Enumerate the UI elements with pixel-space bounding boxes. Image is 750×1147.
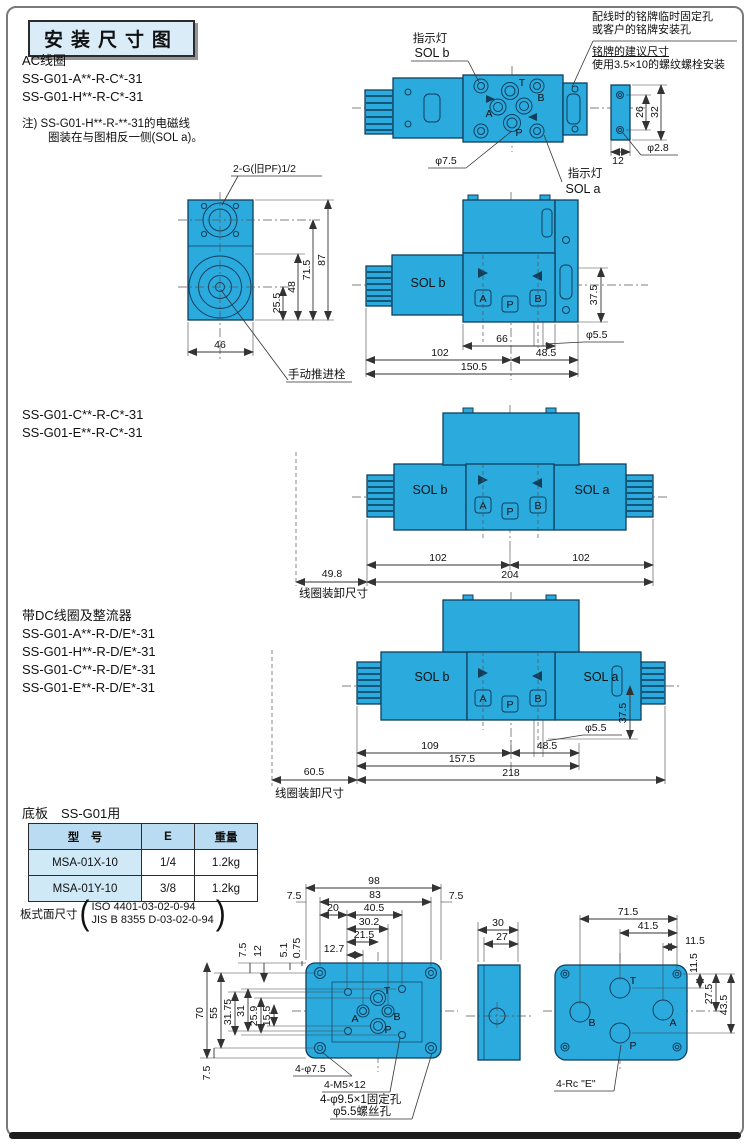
plan-port-a: A <box>485 108 492 120</box>
s1-dim-48-5: 48.5 <box>536 347 557 359</box>
f-dim-7-5-r: 7.5 <box>449 890 464 902</box>
dc-model-1: SS-G01-A**-R-D/E*-31 <box>22 625 156 643</box>
s1-hole-5-5: φ5.5 <box>586 329 608 341</box>
f-dim-21-5: 21.5 <box>354 929 375 941</box>
s2-dim-102r: 102 <box>572 552 590 564</box>
open-paren: ( <box>78 899 92 929</box>
s2-dim-204: 204 <box>501 569 519 581</box>
f-dim-7-5-b: 7.5 <box>201 1066 213 1081</box>
nameplate-detail-drawing: 26 32 12 φ2.8 <box>611 85 678 167</box>
dc-model-3: SS-G01-C**-R-D/E*-31 <box>22 661 156 679</box>
surface-size-note: 板式面尺寸 ( ISO 4401-03-02-0-94 JIS B 8355 D… <box>20 901 228 927</box>
hole-7-5-label: φ7.5 <box>435 155 457 167</box>
plan-port-p: P <box>515 127 522 139</box>
ce-section: SS-G01-C**-R-C*-31 SS-G01-E**-R-C*-31 <box>22 406 143 442</box>
subplate-face-drawing: T B A P 71.5 41.5 11.5 11.5 27.5 43.5 4-… <box>543 906 735 1091</box>
table-header-row: 型 号 E 重量 <box>29 824 258 850</box>
f-dim-7-5-l: 7.5 <box>287 890 302 902</box>
thread-label: 2-G(旧PF)1/2 <box>233 163 296 175</box>
f-p: P <box>384 1024 391 1036</box>
nameplate-note-2: 或客户的铭牌安装孔 <box>592 24 748 37</box>
ac-model-1: SS-G01-A**-R-C*-31 <box>22 70 203 88</box>
f-dim-55: 55 <box>208 1007 220 1019</box>
table-row: MSA-01X-10 1/4 1.2kg <box>29 850 258 876</box>
end-view-drawing: 25.5 48 71.5 87 46 2-G(旧PF)1/2 手动推进栓 <box>178 163 352 382</box>
s1-dim-150-5: 150.5 <box>461 361 487 373</box>
subplate-heading: 底板 SS-G01用 <box>22 803 120 822</box>
s3-dim-109: 109 <box>421 740 439 752</box>
dc-model-4: SS-G01-E**-R-D/E*-31 <box>22 679 156 697</box>
f-note-2: 4-M5×12 <box>324 1079 366 1091</box>
fc-dim-11-5-h: 11.5 <box>685 935 705 947</box>
f-dim-0-75: 0.75 <box>291 938 303 959</box>
f-dim-7-5-t: 7.5 <box>237 943 249 958</box>
s2-dim-102l: 102 <box>429 552 447 564</box>
subplate-table: 型 号 E 重量 MSA-01X-10 1/4 1.2kg MSA-01Y-10… <box>28 823 258 902</box>
fc-t: T <box>630 975 637 987</box>
s1-dim-102: 102 <box>431 347 449 359</box>
catalog-page: T B A P 指示灯 SOL b φ7.5 指示灯 SOL a <box>0 0 750 1147</box>
iso-standard: ISO 4401-03-02-0-94 <box>92 901 214 914</box>
indicator-b-label: 指示灯 <box>413 31 448 45</box>
ac-model-2: SS-G01-H**-R-C*-31 <box>22 88 203 106</box>
dim-26: 26 <box>634 106 646 118</box>
f-dim-12: 12 <box>252 945 264 957</box>
fc-p: P <box>629 1040 636 1052</box>
dc-heading: 带DC线圈及整流器 <box>22 607 156 625</box>
dc-model-2: SS-G01-H**-R-D/E*-31 <box>22 643 156 661</box>
ac-note: 注) SS-G01-H**-R-**-31的电磁线 圈装在与图相反一侧(SOL … <box>22 117 203 145</box>
f-dim-40-5: 40.5 <box>364 902 385 914</box>
s1-p: P <box>506 299 513 311</box>
cell-model-1: MSA-01X-10 <box>29 850 142 876</box>
ac-note-line-2: 圈装在与图相反一侧(SOL a)。 <box>22 131 203 145</box>
col-header-weight: 重量 <box>195 824 258 850</box>
s3-sol-b: SOL b <box>415 670 450 684</box>
dim-48: 48 <box>286 281 298 293</box>
dc-section: 带DC线圈及整流器 SS-G01-A**-R-D/E*-31 SS-G01-H*… <box>22 607 156 697</box>
dim-71-5: 71.5 <box>301 260 313 281</box>
f-dim-30-2: 30.2 <box>359 916 380 928</box>
cell-weight-1: 1.2kg <box>195 850 258 876</box>
s3-sol-a: SOL a <box>584 670 619 684</box>
ac-heading: AC线圈 <box>22 52 203 70</box>
sol-b-label: SOL b <box>415 46 450 60</box>
s2-sol-b: SOL b <box>413 483 448 497</box>
ac-note-line-1: 注) SS-G01-H**-R-**-31的电磁线 <box>22 118 190 130</box>
f-dim-20: 20 <box>327 902 339 914</box>
dim-12: 12 <box>612 155 624 167</box>
sv-dim-27: 27 <box>496 931 508 943</box>
s2-coil-note: 线圈装卸尺寸 <box>299 586 368 600</box>
dim-46: 46 <box>214 339 226 351</box>
double-solenoid-dc-drawing: SOL b SOL a A P B 37.5 φ5.5 109 <box>272 592 680 800</box>
plan-port-t: T <box>519 77 526 89</box>
fc-dim-11-5-v: 11.5 <box>688 953 700 973</box>
s3-p: P <box>506 699 513 711</box>
f-note-3: 4-φ9.5×1固定孔 <box>320 1092 402 1106</box>
s2-sol-a: SOL a <box>575 483 610 497</box>
subplate-front-drawing: T A B P 98 83 7.5 7.5 20 40.5 30.2 21.5 … <box>194 875 463 1119</box>
fc-a: A <box>669 1017 676 1029</box>
fc-b: B <box>588 1017 595 1029</box>
f-dim-12-7: 12.7 <box>324 943 345 955</box>
indicator-a-label: 指示灯 <box>568 166 603 180</box>
s3-dim-37-5: 37.5 <box>617 703 629 724</box>
fc-dim-27-5: 27.5 <box>703 984 715 1005</box>
cell-weight-2: 1.2kg <box>195 876 258 902</box>
f-a: A <box>351 1013 358 1025</box>
dim-32: 32 <box>649 106 661 118</box>
s1-sol-b: SOL b <box>411 276 446 290</box>
fc-note: 4-Rc "E" <box>556 1078 596 1090</box>
f-note-4: φ5.5螺丝孔 <box>333 1105 391 1118</box>
double-solenoid-ac-drawing: SOL b SOL a A P B 102 102 204 49.8 线圈装卸尺… <box>296 405 668 600</box>
side-view-ac-drawing: SOL b A P B 37.5 φ5.5 66 <box>352 192 648 380</box>
f-dim-31: 31 <box>235 1005 247 1017</box>
f-dim-70: 70 <box>194 1007 206 1019</box>
nameplate-note-1: 配线时的铭牌临时固定孔 <box>592 11 748 24</box>
dim-87: 87 <box>316 254 328 266</box>
f-b: B <box>393 1011 400 1023</box>
s3-dim-60-5: 60.5 <box>304 766 325 778</box>
cell-e-1: 1/4 <box>142 850 195 876</box>
sol-a-label: SOL a <box>566 182 601 196</box>
f-note-1: 4-φ7.5 <box>295 1063 326 1075</box>
close-paren: ) <box>214 899 228 929</box>
s3-dim-157-5: 157.5 <box>449 753 475 765</box>
surface-size-label: 板式面尺寸 <box>20 906 78 922</box>
f-dim-5-1: 5.1 <box>278 943 290 958</box>
fc-dim-71-5: 71.5 <box>618 906 639 918</box>
s1-dim-37-5: 37.5 <box>588 285 600 306</box>
cell-e-2: 3/8 <box>142 876 195 902</box>
f-dim-31-75: 31.75 <box>222 999 234 1025</box>
hole-2-8-label: φ2.8 <box>647 142 669 154</box>
s3-dim-48-5: 48.5 <box>537 740 558 752</box>
ac-section: AC线圈 SS-G01-A**-R-C*-31 SS-G01-H**-R-C*-… <box>22 52 203 145</box>
f-dim-25-9: 25.9 <box>248 1006 260 1027</box>
jis-standard: JIS B 8355 D-03-02-0-94 <box>92 914 214 927</box>
s3-coil-note: 线圈装卸尺寸 <box>275 786 344 800</box>
manual-pin-label: 手动推进栓 <box>288 367 346 381</box>
f-dim-15-5: 15.5 <box>261 1006 273 1027</box>
dim-25-5: 25.5 <box>271 293 283 314</box>
fc-dim-41-5: 41.5 <box>638 920 659 932</box>
s1-dim-66: 66 <box>496 333 508 345</box>
ce-model-1: SS-G01-C**-R-C*-31 <box>22 406 143 424</box>
fc-dim-43-5: 43.5 <box>718 995 730 1016</box>
col-header-model: 型 号 <box>29 824 142 850</box>
nameplate-note-4: 使用3.5×10的螺纹螺栓安装 <box>592 59 748 72</box>
f-dim-83: 83 <box>369 889 381 901</box>
col-header-e: E <box>142 824 195 850</box>
standards: ISO 4401-03-02-0-94 JIS B 8355 D-03-02-0… <box>92 901 214 927</box>
ce-model-2: SS-G01-E**-R-C*-31 <box>22 424 143 442</box>
plan-port-b: B <box>537 92 544 104</box>
sv-dim-30: 30 <box>492 917 504 929</box>
f-dim-98: 98 <box>368 875 380 887</box>
subplate-side-drawing: 30 27 <box>466 917 534 1060</box>
nameplate-note-3: 铭牌的建议尺寸 <box>592 46 748 59</box>
f-t: T <box>384 985 391 997</box>
nameplate-notes: 配线时的铭牌临时固定孔 或客户的铭牌安装孔 铭牌的建议尺寸 使用3.5×10的螺… <box>592 11 748 72</box>
s2-p: P <box>506 506 513 518</box>
s2-dim-49-8: 49.8 <box>322 568 343 580</box>
dimension-drawings: T B A P 指示灯 SOL b φ7.5 指示灯 SOL a <box>0 0 750 1147</box>
s3-hole-5-5: φ5.5 <box>585 722 607 734</box>
s3-dim-218: 218 <box>502 767 520 779</box>
